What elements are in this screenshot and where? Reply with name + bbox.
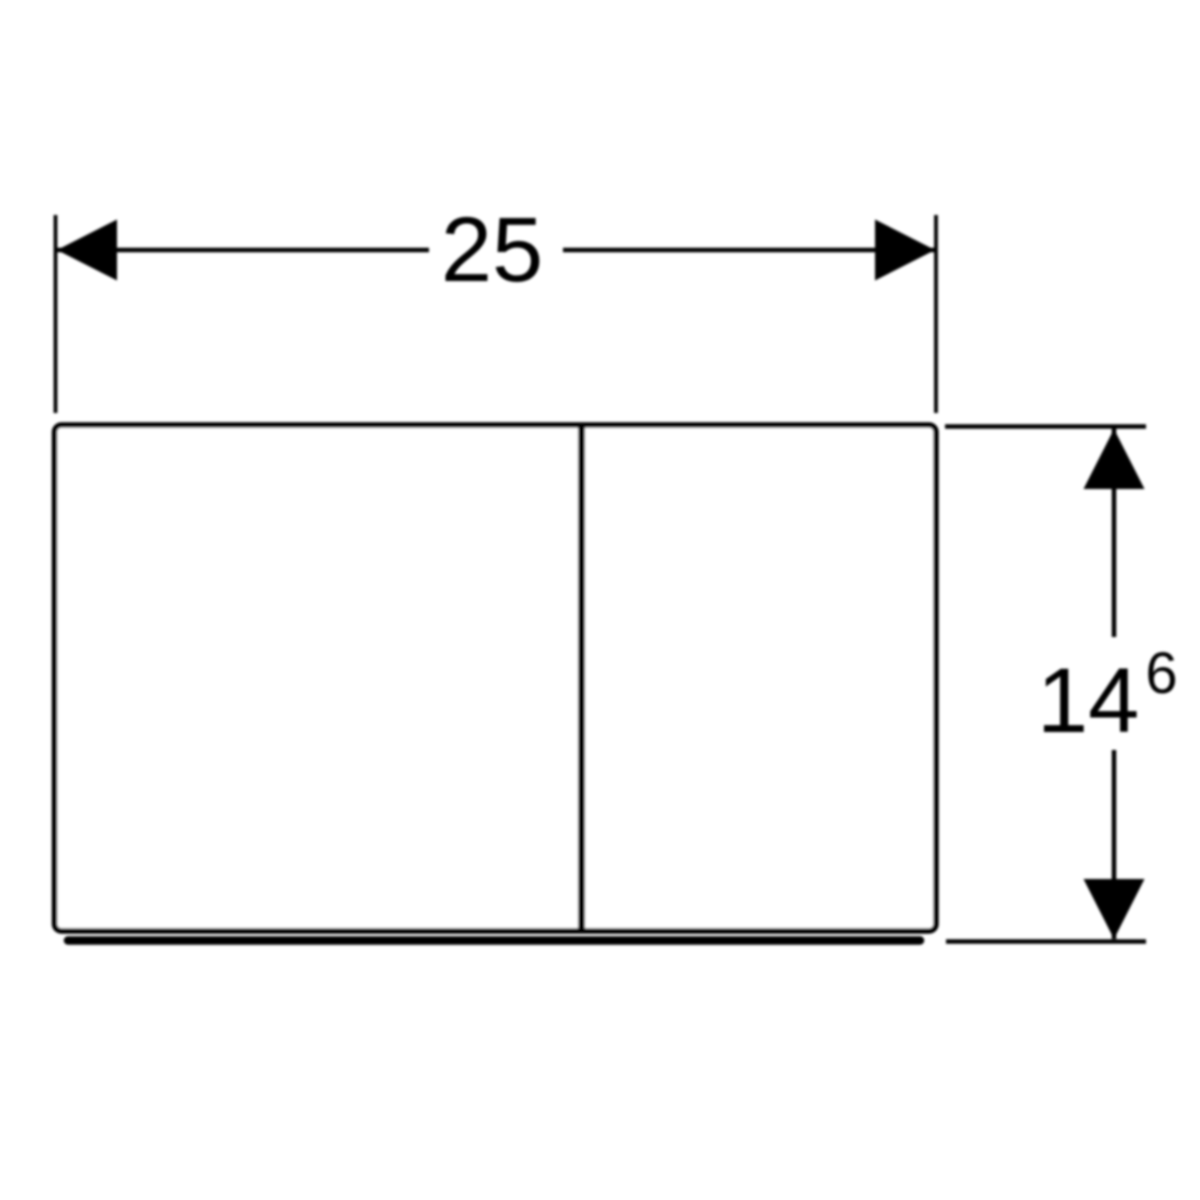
svg-text:25: 25 — [441, 199, 543, 301]
